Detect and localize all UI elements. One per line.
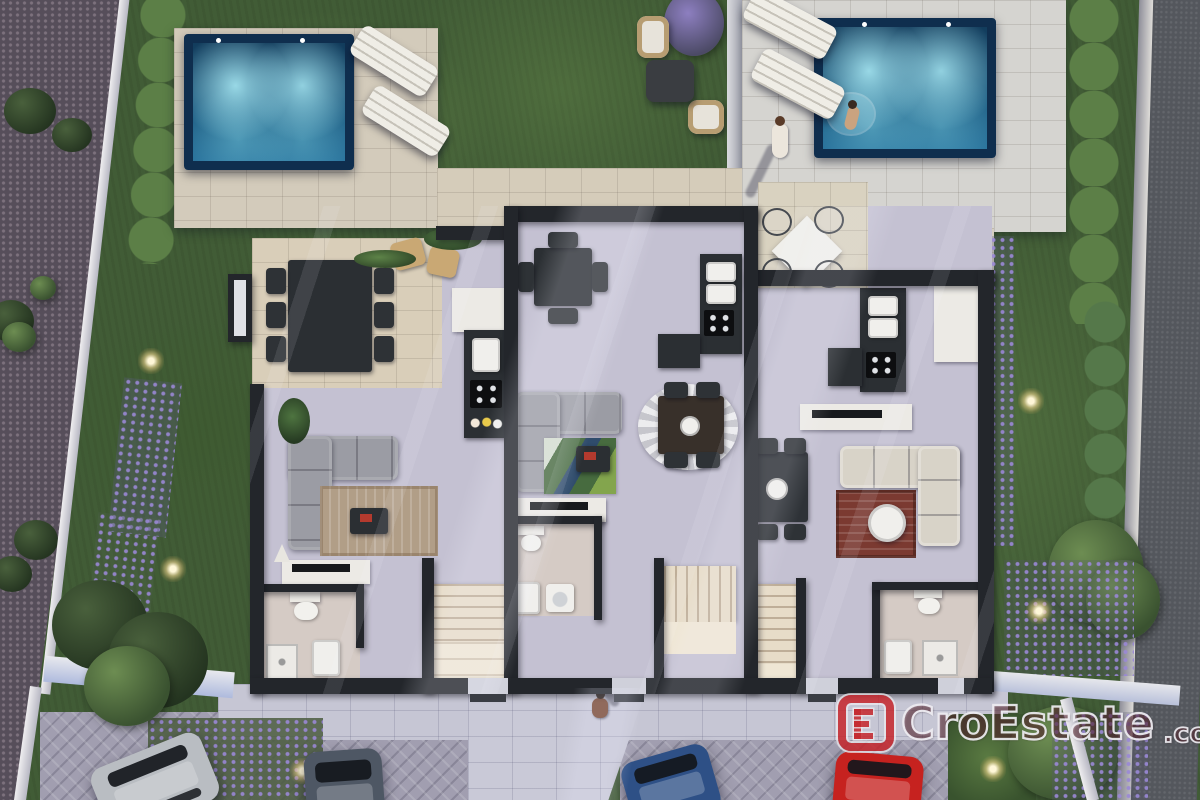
kitchen-sink (868, 296, 898, 316)
party-wall (504, 206, 518, 692)
toilet (918, 598, 940, 614)
dining-chair (374, 336, 394, 362)
bathroom-sink (884, 640, 912, 674)
left-pool (184, 34, 354, 170)
kitchen-cabinet (452, 288, 506, 332)
overhanging-tree (84, 646, 170, 726)
dining-chair (374, 268, 394, 294)
dining-chair (548, 308, 578, 324)
tv (292, 564, 350, 572)
house-wall-right (978, 270, 994, 692)
toilet-tank (518, 526, 544, 535)
dining-chair (696, 382, 720, 398)
tv (530, 502, 588, 510)
kitchen-sink (868, 318, 898, 338)
wing-wall-cap (234, 280, 246, 336)
house-wall-left (250, 384, 264, 692)
hedge-row (1058, 0, 1130, 324)
brand-icon-e (854, 721, 869, 727)
pool-edge-light (300, 38, 305, 43)
house-wall-top-right (744, 270, 994, 286)
shower (922, 640, 958, 676)
tv (812, 410, 882, 418)
door-opening (806, 678, 838, 694)
table-plate (680, 416, 700, 436)
door-mat (470, 694, 506, 702)
door-opening (612, 678, 646, 694)
door-mat (614, 694, 644, 702)
red-book (360, 514, 372, 522)
pool-edge-light (862, 22, 867, 27)
toilet (294, 602, 318, 620)
pool-edge-light (946, 22, 951, 27)
house-wall-stub (436, 226, 508, 240)
stair-landing (664, 622, 736, 654)
door-mat (808, 694, 836, 702)
garden-light (160, 556, 186, 582)
bathroom-wall (594, 516, 602, 620)
bathroom-wall (258, 584, 362, 592)
staircase (664, 566, 736, 622)
brand-icon-e (854, 733, 873, 739)
wooden-chair (425, 245, 460, 279)
brand-tld: .com (1163, 718, 1200, 749)
garden-light (1018, 388, 1044, 414)
door-opening (468, 678, 508, 694)
kitchen-island (828, 348, 862, 386)
shrub (14, 520, 58, 560)
bathroom-wall (508, 516, 602, 524)
stair-wall (796, 578, 806, 690)
indoor-plant (278, 398, 310, 444)
walker (592, 698, 608, 718)
wire-chair (814, 206, 844, 234)
wire-chair (762, 208, 792, 236)
bathroom-wall (872, 582, 980, 590)
dining-table (534, 248, 592, 306)
shrub (2, 322, 36, 352)
round-coffee-table (868, 504, 906, 542)
staircase (430, 584, 510, 642)
garden-light (1026, 598, 1052, 624)
swimmer-head (848, 100, 857, 109)
kitchen-sink (472, 338, 500, 372)
garden-wall (727, 0, 742, 176)
dining-chair (374, 302, 394, 328)
woman-walking (772, 124, 788, 158)
sofa (918, 446, 960, 546)
dining-chair (548, 232, 578, 248)
party-wall (744, 206, 758, 692)
washing-machine (546, 584, 574, 612)
dining-chair (756, 438, 778, 454)
house-wall-top-center (506, 206, 758, 222)
dining-chair (696, 452, 720, 468)
dining-chair (518, 262, 534, 292)
hedge-row (1076, 300, 1134, 550)
table-plate (766, 478, 788, 500)
dining-chair (784, 438, 806, 454)
dining-chair (266, 336, 286, 362)
bathroom-wall (872, 582, 880, 688)
kitchen-sink (706, 262, 736, 282)
shower (266, 644, 298, 680)
dining-table (288, 260, 372, 372)
windshield (315, 759, 372, 783)
lavender-bed (1004, 560, 1134, 676)
bathroom-wall (356, 584, 364, 648)
garden-light (138, 348, 164, 374)
kitchen-island (658, 334, 700, 368)
stair-wall (422, 558, 434, 692)
lavender-shrub (664, 0, 724, 56)
shrub (4, 88, 56, 134)
garden-light (980, 756, 1006, 782)
pool-edge-light (216, 38, 221, 43)
bathroom-sink (312, 640, 340, 676)
red-car (831, 750, 924, 800)
dining-chair (784, 524, 806, 540)
coffee-table-outdoor (646, 60, 694, 102)
toilet (521, 535, 541, 551)
breakfast-items (468, 414, 504, 432)
shrub (30, 276, 56, 300)
cooktop (866, 352, 896, 378)
graphite-car (303, 747, 387, 800)
shrub (52, 118, 92, 152)
wicker-chair (637, 16, 669, 58)
red-book (584, 452, 596, 460)
dining-chair (592, 262, 608, 292)
toilet-tank (290, 592, 320, 602)
cooktop (704, 310, 734, 336)
aerial-villa-render: CroEstate .com (0, 0, 1200, 800)
stair-wall (654, 558, 664, 688)
dining-chair (266, 268, 286, 294)
dining-chair (756, 524, 778, 540)
potted-plants (354, 250, 416, 268)
woman-head (775, 116, 785, 126)
dining-chair (266, 302, 286, 328)
watermark-logo: CroEstate .com (838, 690, 1198, 756)
brand-icon-e (854, 709, 873, 715)
car-roof (845, 776, 910, 800)
brand-text: CroEstate (901, 696, 1154, 750)
kitchen-cabinet (934, 286, 978, 362)
cooktop (470, 380, 502, 408)
wicker-chair (688, 100, 724, 134)
dining-chair (664, 452, 688, 468)
brand-icon (838, 695, 894, 751)
car-roof (316, 783, 374, 800)
dining-chair (664, 382, 688, 398)
kitchen-sink (706, 284, 736, 304)
